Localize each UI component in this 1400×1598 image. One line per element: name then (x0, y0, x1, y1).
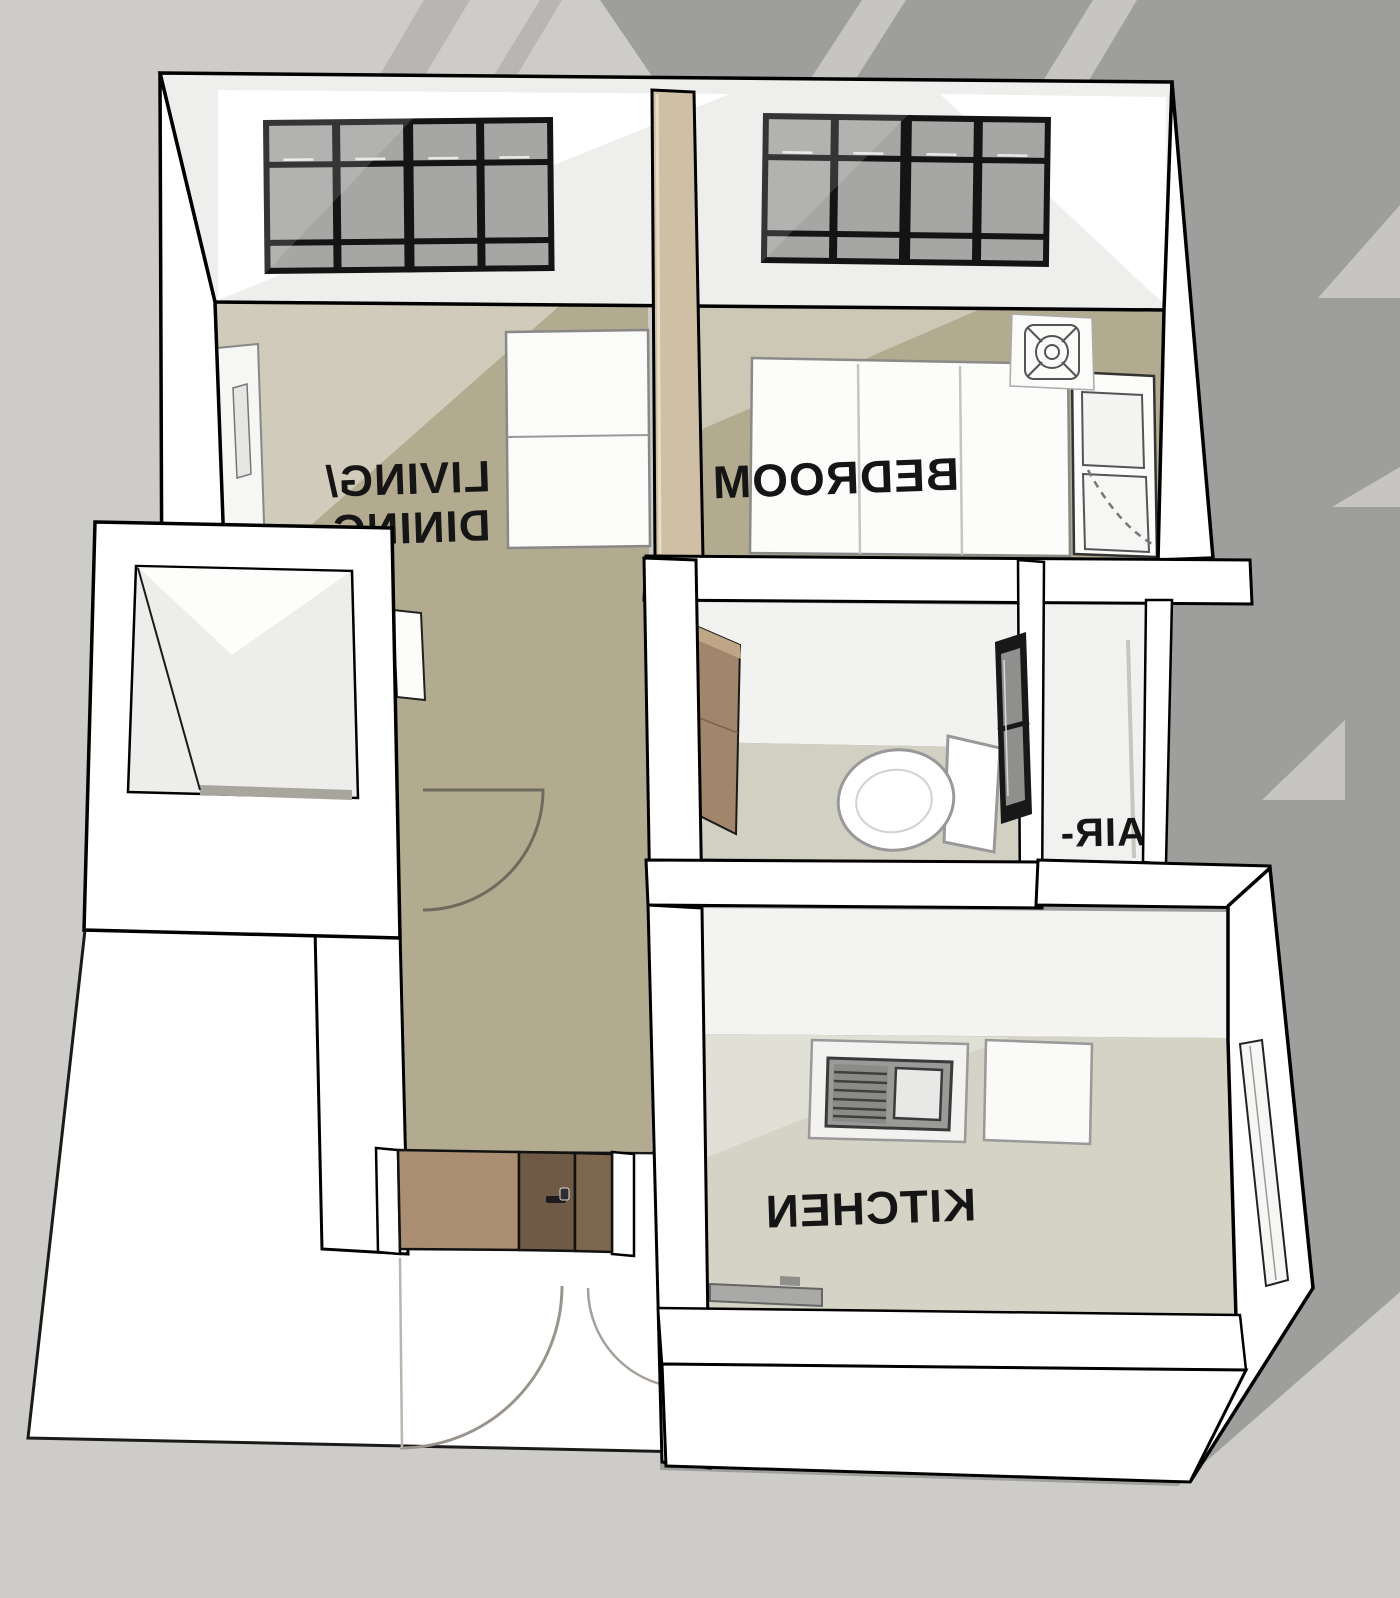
hall-bathroom-wall (644, 558, 702, 905)
kitchen-counter-square (984, 1040, 1092, 1144)
sink-basin (894, 1068, 942, 1120)
bedroom-window-grid (761, 113, 1051, 267)
hall-shoe-cabinet (393, 610, 425, 700)
bathroom-kitchen-wall-band (646, 860, 1042, 908)
living-dining-label-line1: LIVING/ (324, 452, 492, 507)
floor-plan-screenshot: LIVING/ DINING BEDROOM KITCHEN AIR- BATH (0, 0, 1400, 1598)
kitchen-label: KITCHEN (764, 1178, 977, 1237)
kitchen-south-wall-top (658, 1308, 1246, 1370)
entrance-door-panel-edge (575, 1153, 612, 1252)
sofa-bed (506, 330, 650, 548)
bathroom-back-wall-face (694, 602, 1022, 748)
aircon-ledge-label: AIR- (1059, 810, 1146, 855)
balcony (84, 522, 400, 938)
wardrobe-door-bottom (1083, 474, 1149, 552)
aircon-east-wall (1143, 600, 1172, 864)
kitchen-counter-rail (710, 1284, 822, 1306)
entry-door-jamb-left (376, 1148, 400, 1254)
sideboard-handle (233, 384, 251, 478)
entrance-door (398, 1150, 612, 1252)
kitchen-back-wall-face (698, 908, 1230, 1038)
living-window-grid (263, 117, 555, 274)
kitchen-counter-rail-knob (780, 1276, 800, 1286)
bedroom-bottom-wall-band (644, 556, 1252, 604)
wardrobe-door-top (1082, 392, 1144, 468)
kitchen-south-wall-front (662, 1364, 1246, 1482)
floor-plan-canvas: LIVING/ DINING BEDROOM KITCHEN AIR- BATH (0, 0, 1400, 1598)
entry-door-jamb-right (612, 1152, 634, 1256)
entrance-door-panel-light (398, 1150, 519, 1250)
bathroom-window (995, 632, 1032, 824)
bedroom-label: BEDROOM (711, 448, 960, 509)
door-handle-base (560, 1188, 569, 1200)
